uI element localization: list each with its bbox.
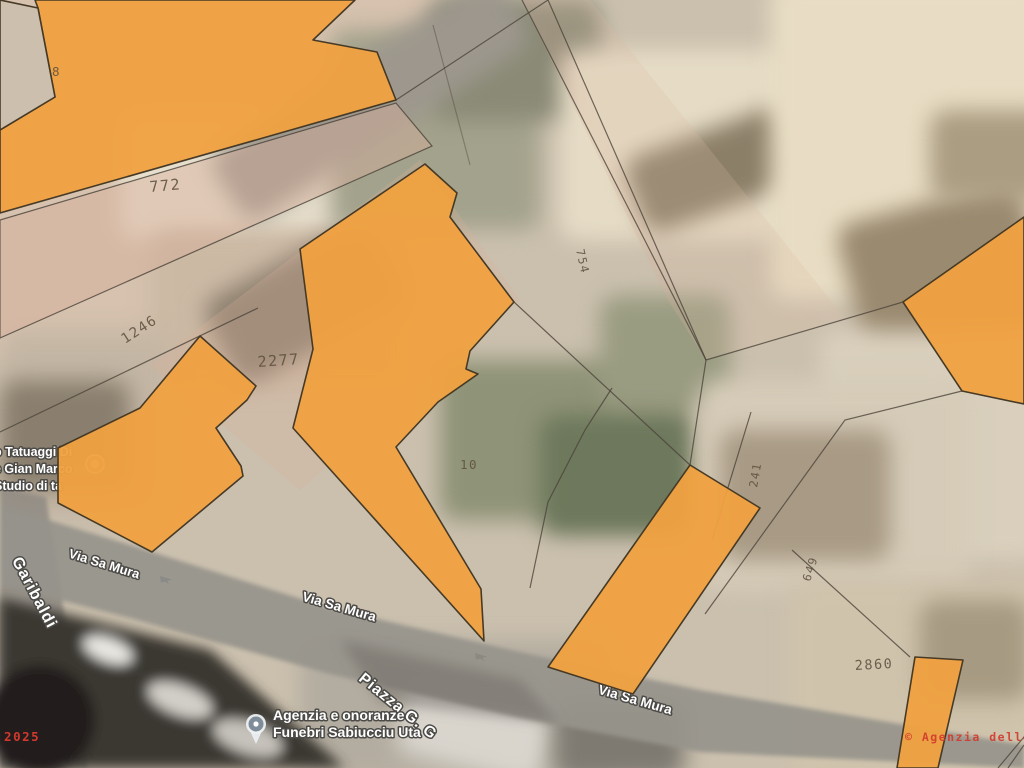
parcel-label-1246: 1246 (118, 312, 160, 347)
parcel-label-649: 649 (800, 555, 821, 583)
parcel-label-10: 10 (460, 457, 478, 472)
highlighted-parcel (293, 164, 514, 641)
map-canvas[interactable]: Garibaldi Via Sa Mura Via Sa Mura Via Sa… (0, 0, 1024, 768)
map-overlay: Garibaldi Via Sa Mura Via Sa Mura Via Sa… (0, 0, 1024, 768)
highlighted-parcel (903, 217, 1024, 404)
highlighted-parcel (548, 465, 760, 694)
funeral-pin-icon-dot (253, 721, 258, 726)
parcel-label-2277: 2277 (257, 350, 300, 371)
tattoo-label-line3: Studio di ta (0, 479, 63, 493)
watermark-year: © 2025 (0, 729, 40, 744)
parcel-tint-ne (548, 0, 845, 360)
parcel-label-241: 241 (746, 461, 764, 488)
parcel-label-8: 8 (52, 64, 61, 79)
parcel-label-772: 772 (149, 175, 182, 196)
funeral-label-line2: Funebri Sabiucciu Uta (273, 724, 421, 740)
parcel-label-2860: 2860 (854, 656, 893, 674)
parcel-label-754: 754 (573, 248, 592, 276)
watermark-agency: © Agenzia delle E (905, 730, 1024, 744)
funeral-label-line1: Agenzia e onoranze (273, 707, 405, 723)
poi-funeral-agency[interactable]: Agenzia e onoranze Funebri Sabiucciu Uta (246, 707, 421, 744)
